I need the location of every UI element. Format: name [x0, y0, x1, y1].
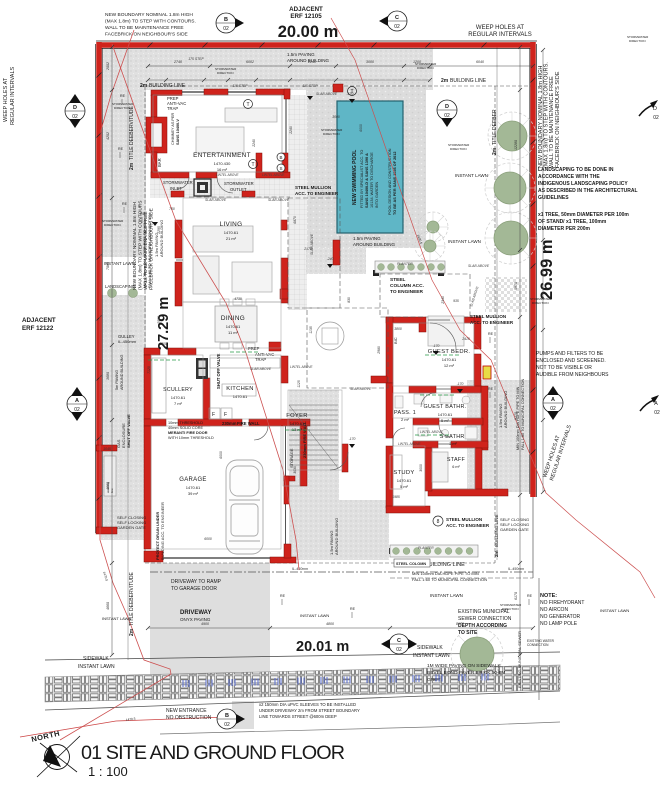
svg-text:-170: -170: [349, 437, 356, 441]
svg-text:NEW ENTRANCE: NEW ENTRANCE: [166, 708, 207, 714]
svg-text:MERANTI FIRE DOOR: MERANTI FIRE DOOR: [168, 431, 208, 435]
svg-text:4800: 4800: [326, 622, 334, 626]
svg-text:ACC. TO ENGINEER: ACC. TO ENGINEER: [295, 191, 339, 196]
svg-text:FITTED BY SPECIALIST ACC. TO: FITTED BY SPECIALIST ACC. TO: [360, 150, 364, 208]
svg-text:3000: 3000: [419, 464, 423, 472]
svg-text:AS DESCRIBED IN THE ARCHITECTU: AS DESCRIBED IN THE ARCHITECTURAL: [538, 188, 638, 194]
svg-text:LINTEL ABOVE: LINTEL ABOVE: [398, 442, 421, 446]
svg-text:CONNECTION: CONNECTION: [527, 643, 549, 647]
svg-text:3800: 3800: [394, 327, 402, 331]
svg-text:SANS 10400-V: SANS 10400-V: [176, 119, 180, 145]
svg-text:LINE TOWARDS STREET @600m DEEP: LINE TOWARDS STREET @600m DEEP: [259, 714, 337, 719]
svg-text:UNDER DRIVEWAY 2m FROM STREET: UNDER DRIVEWAY 2m FROM STREET BOUNDARY: [259, 708, 360, 713]
svg-text:POOL DESIGN AND CONSTRUCTION: POOL DESIGN AND CONSTRUCTION: [388, 148, 392, 215]
svg-text:LINTEL ABOVE: LINTEL ABOVE: [290, 365, 313, 369]
svg-text:FACEBRICK ON NEIGHBOUR'S SIDE: FACEBRICK ON NEIGHBOUR'S SIDE: [105, 32, 188, 38]
svg-text:NO AIRCON: NO AIRCON: [540, 607, 568, 613]
svg-text:BUILDING LINE: BUILDING LINE: [425, 562, 465, 568]
svg-text:x2 150mm DIA uPVC SLEEVES TO B: x2 150mm DIA uPVC SLEEVES TO BE INSTALLE…: [259, 702, 356, 707]
svg-text:C: C: [397, 638, 401, 644]
svg-text:SIDEWALK: SIDEWALK: [417, 645, 443, 651]
svg-text:8170: 8170: [514, 412, 518, 420]
svg-text:4202: 4202: [106, 132, 110, 140]
svg-text:C: C: [395, 15, 399, 21]
svg-text:2740: 2740: [173, 60, 182, 64]
svg-text:NO FIREHYDRANT: NO FIREHYDRANT: [540, 600, 584, 606]
svg-text:DIRECTION: DIRECTION: [104, 223, 121, 227]
svg-text:BIC: BIC: [393, 337, 398, 344]
svg-text:LIVING: LIVING: [220, 221, 243, 228]
svg-text:5970: 5970: [514, 282, 518, 290]
svg-text:ADJACENT: ADJACENT: [22, 317, 56, 324]
svg-text:4660: 4660: [106, 482, 110, 490]
svg-text:SCULLERY: SCULLERY: [163, 387, 193, 393]
svg-text:STEEL MULLION: STEEL MULLION: [470, 314, 506, 319]
svg-text:T: T: [350, 89, 353, 95]
svg-text:A: A: [75, 398, 79, 404]
svg-text:S: S: [279, 166, 282, 171]
svg-text:RE: RE: [488, 387, 494, 391]
svg-text:SLAB ABOVE: SLAB ABOVE: [250, 367, 272, 371]
svg-text:115 STEP: 115 STEP: [232, 84, 248, 88]
svg-text:ACC. TO ENGINEER: ACC. TO ENGINEER: [446, 523, 490, 528]
svg-text:FALL 1:60 TO MUNICIPAL CONNECT: FALL 1:60 TO MUNICIPAL CONNECTION: [412, 577, 487, 582]
svg-text:1470.430: 1470.430: [214, 161, 231, 166]
svg-text:DIRECTION: DIRECTION: [114, 106, 131, 110]
svg-text:STEEL MULLION: STEEL MULLION: [446, 517, 482, 522]
svg-text:INSTANT LAWN: INSTANT LAWN: [455, 173, 488, 178]
svg-text:3680: 3680: [106, 372, 110, 380]
svg-text:INSTANT LAWN: INSTANT LAWN: [102, 616, 131, 621]
svg-text:STORMWATER: STORMWATER: [224, 181, 254, 186]
svg-text:INSTANT LAWN: INSTANT LAWN: [413, 653, 450, 659]
svg-text:02: 02: [223, 26, 229, 32]
svg-text:NEW BOUNDARY NOMINAL 1.8m HIGH: NEW BOUNDARY NOMINAL 1.8m HIGH: [132, 202, 138, 290]
svg-text:1.5m PAVING: 1.5m PAVING: [353, 236, 381, 241]
svg-text:2m: 2m: [494, 550, 499, 557]
svg-text:39 m²: 39 m²: [188, 491, 199, 496]
svg-text:6870: 6870: [293, 216, 297, 224]
svg-text:RE: RE: [527, 594, 533, 598]
svg-text:NO GENERATOR: NO GENERATOR: [540, 614, 580, 620]
svg-text:6000: 6000: [219, 451, 223, 459]
svg-text:5 m²: 5 m²: [400, 484, 409, 489]
svg-text:AROUND BUILDING: AROUND BUILDING: [353, 242, 396, 247]
svg-text:1470.61: 1470.61: [224, 230, 239, 235]
svg-text:6000: 6000: [359, 124, 363, 132]
svg-text:TRAP: TRAP: [255, 357, 266, 362]
svg-text:KITCHEN: KITCHEN: [226, 386, 254, 392]
svg-text:1470.61: 1470.61: [442, 357, 457, 362]
svg-text:7060: 7060: [106, 262, 110, 270]
svg-text:2m: 2m: [492, 147, 498, 155]
svg-text:BUILDING LINE: BUILDING LINE: [494, 514, 499, 547]
svg-text:11 m²: 11 m²: [228, 330, 239, 335]
svg-text:02: 02: [72, 114, 78, 120]
svg-text:1470.61: 1470.61: [397, 478, 412, 483]
svg-text:02: 02: [74, 407, 80, 413]
svg-text:1470.61: 1470.61: [438, 412, 453, 417]
svg-text:FACEBRICK ON NEIGHBOUR'S SIDE: FACEBRICK ON NEIGHBOUR'S SIDE: [555, 71, 561, 168]
svg-text:10mm THRESHOLD: 10mm THRESHOLD: [168, 421, 203, 425]
svg-text:12280: 12280: [514, 140, 518, 150]
svg-text:TO GARAGE DOOR: TO GARAGE DOOR: [171, 586, 217, 592]
svg-text:T: T: [246, 102, 249, 108]
svg-text:GARAGE: GARAGE: [179, 477, 206, 483]
svg-text:A: A: [551, 397, 555, 403]
svg-text:T: T: [251, 162, 254, 168]
svg-text:ENTERTAINMENT: ENTERTAINMENT: [193, 152, 251, 159]
svg-text:DIRECTION: DIRECTION: [417, 66, 434, 70]
svg-text:2m: 2m: [140, 83, 148, 89]
svg-text:INDIGENOUS LANDSCAPING POLICY: INDIGENOUS LANDSCAPING POLICY: [538, 181, 628, 187]
svg-text:2340: 2340: [441, 296, 445, 305]
svg-text:B: B: [225, 713, 229, 719]
svg-text:TITLE DEEBERVITUDE: TITLE DEEBERVITUDE: [129, 106, 135, 160]
svg-text:D: D: [653, 106, 657, 112]
svg-text:6170: 6170: [514, 592, 518, 600]
svg-text:2240: 2240: [252, 139, 256, 148]
svg-text:INSTANT LAWN: INSTANT LAWN: [300, 613, 329, 618]
svg-text:AROUND BUILDING: AROUND BUILDING: [159, 220, 164, 257]
svg-text:RE: RE: [488, 332, 494, 336]
svg-text:TO BE AS PER SANS 1536 OF 2012: TO BE AS PER SANS 1536 OF 2012: [393, 151, 397, 215]
svg-text:RE: RE: [350, 607, 356, 611]
svg-text:SLAB ABOVE: SLAB ABOVE: [310, 233, 314, 255]
svg-text:6040: 6040: [476, 60, 484, 64]
svg-text:175 STEP: 175 STEP: [188, 57, 204, 61]
svg-text:ACC. TO ENGINEER: ACC. TO ENGINEER: [470, 320, 514, 325]
svg-text:NO LAMP POLE: NO LAMP POLE: [540, 621, 578, 627]
svg-text:SIDEWALK: SIDEWALK: [83, 656, 109, 662]
svg-text:D: D: [445, 104, 449, 110]
svg-text:FOYER: FOYER: [286, 413, 307, 419]
svg-text:REGULAR INTERVALS: REGULAR INTERVALS: [10, 66, 16, 125]
svg-text:2m: 2m: [129, 162, 135, 170]
svg-text:3000: 3000: [332, 115, 340, 119]
svg-text:STEEL MULLION: STEEL MULLION: [295, 185, 331, 190]
svg-text:2410: 2410: [461, 337, 470, 341]
svg-text:PASS. 1: PASS. 1: [394, 410, 416, 416]
svg-text:RE: RE: [140, 212, 146, 216]
svg-text:B: B: [224, 17, 228, 23]
svg-text:8: 8: [437, 519, 440, 525]
svg-text:BAR: BAR: [157, 158, 162, 167]
svg-text:AROUND BUILDING: AROUND BUILDING: [334, 518, 339, 555]
svg-text:NO OBSTRUCTION: NO OBSTRUCTION: [166, 715, 212, 721]
svg-text:ADJACENT: ADJACENT: [289, 6, 323, 13]
svg-text:DINING: DINING: [221, 315, 245, 322]
svg-text:PUMPS AND FILTERS TO BE: PUMPS AND FILTERS TO BE: [536, 351, 604, 357]
svg-text:02: 02: [394, 24, 400, 30]
svg-text:2295: 2295: [157, 226, 161, 235]
svg-text:1.5m PAVING: 1.5m PAVING: [287, 52, 315, 57]
svg-text:INSTANT LAWN: INSTANT LAWN: [430, 593, 463, 598]
svg-text:BUILDING ACC. TO ENGINEER: BUILDING ACC. TO ENGINEER: [160, 502, 165, 560]
svg-text:STEEL COLOMN: STEEL COLOMN: [396, 562, 426, 566]
svg-text:INSTANT LAWN: INSTANT LAWN: [448, 239, 481, 244]
svg-text:750: 750: [169, 207, 175, 211]
svg-text:(MAX 1.8m) TO STEP WITH CONTOU: (MAX 1.8m) TO STEP WITH CONTOURS.: [105, 19, 196, 25]
svg-text:WITH 10mm THRESHOLD: WITH 10mm THRESHOLD: [168, 436, 214, 440]
svg-text:40mm SOLID CORE: 40mm SOLID CORE: [168, 426, 203, 430]
svg-text:6002: 6002: [246, 60, 254, 64]
svg-text:DIRECTION: DIRECTION: [323, 132, 340, 136]
svg-text:SLAB ABOVE: SLAB ABOVE: [268, 198, 290, 202]
svg-text:01 SITE AND GROUND FLOOR: 01 SITE AND GROUND FLOOR: [81, 742, 345, 764]
svg-text:DIRECTION: DIRECTION: [629, 39, 646, 43]
svg-text:LINTEL ABOVE: LINTEL ABOVE: [216, 173, 239, 177]
svg-text:1045: 1045: [103, 447, 111, 451]
svg-text:2525: 2525: [157, 316, 161, 325]
svg-text:RE: RE: [122, 202, 128, 206]
svg-text:16 m²: 16 m²: [217, 167, 228, 172]
svg-text:A: A: [654, 401, 658, 407]
svg-text:LANDSCAPING: LANDSCAPING: [105, 284, 135, 289]
svg-text:SLAB ABOVE: SLAB ABOVE: [205, 198, 227, 202]
svg-text:GARDEN GATE: GARDEN GATE: [500, 527, 529, 532]
svg-text:SHUT OFF VALVE: SHUT OFF VALVE: [216, 353, 221, 389]
svg-text:MIN 100mm DIA HDPE PIPE TO MIN: MIN 100mm DIA HDPE PIPE TO MIN: [412, 571, 479, 576]
svg-text:NOTE:: NOTE:: [540, 593, 557, 599]
svg-text:1470.61: 1470.61: [171, 395, 186, 400]
svg-text:935: 935: [453, 299, 459, 303]
svg-text:2980: 2980: [377, 346, 381, 355]
svg-text:TO ENGINEER: TO ENGINEER: [390, 289, 423, 295]
svg-text:AROUND BUILDING: AROUND BUILDING: [503, 391, 508, 428]
svg-text:TO SITE: TO SITE: [458, 630, 478, 636]
svg-text:AUDIBLE FROM NEIGHBOURS: AUDIBLE FROM NEIGHBOURS: [536, 372, 609, 378]
svg-text:GUEST BATHR.: GUEST BATHR.: [424, 404, 467, 410]
svg-text:WALL TO BE MAINTENANCE FREE: WALL TO BE MAINTENANCE FREE: [105, 25, 184, 31]
svg-text:ERF 12105: ERF 12105: [290, 13, 322, 20]
svg-text:LINTEL ABOVE: LINTEL ABOVE: [420, 430, 443, 434]
svg-text:10134. WATER TO DISCHARGE: 10134. WATER TO DISCHARGE: [370, 152, 374, 208]
svg-text:1125: 1125: [297, 380, 301, 387]
svg-text:-240: -240: [327, 257, 334, 261]
svg-text:GARDEN GATE: GARDEN GATE: [117, 525, 146, 530]
svg-text:TRAP: TRAP: [167, 106, 178, 111]
svg-text:12 m²: 12 m²: [444, 363, 455, 368]
svg-text:4730: 4730: [234, 297, 242, 301]
svg-text:OUTLET: OUTLET: [230, 187, 247, 192]
svg-text:SLAB ABOVE: SLAB ABOVE: [316, 92, 338, 96]
svg-text:REGULAR INTERVALS: REGULAR INTERVALS: [468, 32, 531, 38]
svg-text:-170: -170: [457, 382, 464, 386]
svg-text:PLANTER: PLANTER: [418, 546, 434, 550]
svg-text:02: 02: [396, 647, 402, 653]
svg-text:RE: RE: [120, 94, 126, 98]
svg-text:D: D: [73, 105, 77, 111]
svg-text:4660: 4660: [106, 602, 110, 610]
svg-text:DRIVEWAY: DRIVEWAY: [180, 610, 211, 616]
svg-text:6 m²: 6 m²: [452, 465, 460, 469]
svg-text:AROUND BUILDING: AROUND BUILDING: [120, 355, 124, 390]
svg-text:NOT TO BE VISIBLE OR: NOT TO BE VISIBLE OR: [536, 365, 592, 371]
svg-text:STORAGE: STORAGE: [289, 448, 294, 468]
svg-text:PREP: PREP: [248, 346, 260, 351]
svg-text:NEW SWIMMING POOL: NEW SWIMMING POOL: [352, 150, 358, 205]
svg-text:INSTANT LAWN: INSTANT LAWN: [600, 608, 629, 613]
svg-text:BUILDING LINE: BUILDING LINE: [149, 83, 186, 89]
svg-text:26.99 m: 26.99 m: [538, 239, 556, 300]
svg-text:ENCLOSED AND SCREENED.: ENCLOSED AND SCREENED.: [536, 358, 606, 364]
svg-text:LANDSCAPING TO BE DONE IN: LANDSCAPING TO BE DONE IN: [538, 167, 614, 173]
svg-text:EXISTING MUNICIPAL SEWER: EXISTING MUNICIPAL SEWER: [517, 631, 522, 688]
svg-text:FIRE WALL: FIRE WALL: [237, 421, 260, 426]
svg-text:4900: 4900: [201, 622, 209, 626]
svg-text:8170: 8170: [456, 622, 464, 626]
svg-text:DRIVEWAY TO RAMP: DRIVEWAY TO RAMP: [171, 579, 222, 585]
svg-text:CHIMNEY AS PER: CHIMNEY AS PER: [171, 113, 175, 145]
svg-text:115 STEP: 115 STEP: [302, 84, 318, 88]
svg-text:1135: 1135: [309, 326, 313, 333]
svg-text:SANS 10400-D & SANS 1390 &: SANS 10400-D & SANS 1390 &: [365, 153, 369, 208]
svg-text:PLANTER: PLANTER: [397, 262, 413, 266]
svg-text:21 m²: 21 m²: [226, 236, 237, 241]
svg-text:02: 02: [653, 115, 659, 121]
svg-text:830: 830: [347, 297, 351, 303]
svg-text:1985: 1985: [392, 495, 400, 499]
svg-text:STAFF: STAFF: [447, 457, 466, 463]
svg-text:6000: 6000: [204, 537, 212, 541]
svg-text:ACCORDANCE WITH THE: ACCORDANCE WITH THE: [538, 174, 600, 180]
svg-text:F: F: [212, 412, 215, 418]
svg-text:3030: 3030: [293, 466, 297, 474]
svg-text:2m: 2m: [129, 628, 135, 636]
svg-text:NEW BOUNDARY NOMINAL 1.8m HIGH: NEW BOUNDARY NOMINAL 1.8m HIGH: [105, 12, 193, 18]
svg-text:DIRECTION: DIRECTION: [450, 147, 467, 151]
svg-text:WEEP HOLES AT: WEEP HOLES AT: [476, 25, 524, 31]
svg-text:WEEP HOLES AT: WEEP HOLES AT: [3, 77, 9, 122]
svg-text:DIAMETER PER 200m: DIAMETER PER 200m: [538, 226, 591, 232]
svg-text:3000: 3000: [366, 60, 374, 64]
svg-text:STEEL: STEEL: [390, 277, 406, 283]
svg-text:RE: RE: [280, 594, 286, 598]
svg-text:IL-450mm: IL-450mm: [292, 567, 308, 571]
svg-text:2m: 2m: [441, 78, 449, 84]
svg-text:B: B: [279, 155, 282, 160]
svg-text:2002: 2002: [106, 62, 110, 71]
svg-text:x1 TREE, 50mm DIAMETER PER 100: x1 TREE, 50mm DIAMETER PER 100m: [538, 212, 629, 218]
svg-text:DIRECTION: DIRECTION: [502, 607, 519, 611]
svg-text:1470.61: 1470.61: [233, 394, 248, 399]
svg-text:ERF 12122: ERF 12122: [22, 325, 54, 332]
svg-text:1300: 1300: [159, 342, 167, 346]
svg-text:OF STAND/ x1 TREE, 100mm: OF STAND/ x1 TREE, 100mm: [538, 219, 607, 225]
svg-text:LINTEL ABOVE: LINTEL ABOVE: [262, 173, 285, 177]
svg-text:IL-450mm: IL-450mm: [508, 567, 524, 571]
svg-text:02: 02: [444, 113, 450, 119]
svg-text:STUDY: STUDY: [393, 470, 414, 476]
svg-text:1470.61: 1470.61: [186, 485, 201, 490]
svg-text:7120: 7120: [147, 366, 151, 374]
svg-text:20.01 m: 20.01 m: [296, 639, 349, 655]
svg-text:02: 02: [654, 410, 660, 416]
svg-text:SLAB ABOVE: SLAB ABOVE: [468, 264, 490, 268]
svg-text:5 m²: 5 m²: [441, 418, 450, 423]
svg-text:DIRECTION: DIRECTION: [532, 301, 549, 305]
svg-text:DIRECTION: DIRECTION: [217, 71, 234, 75]
svg-text:1M WIDE PAVING ON SIDEWALK: 1M WIDE PAVING ON SIDEWALK: [427, 663, 502, 669]
svg-text:GUIDELINES: GUIDELINES: [538, 195, 569, 201]
svg-text:TITLE DEEBERVITUDE: TITLE DEEBERVITUDE: [129, 572, 135, 626]
svg-text:SEWER CONNECTION: SEWER CONNECTION: [458, 616, 512, 622]
svg-text:1 : 100: 1 : 100: [88, 764, 128, 779]
svg-text:COLUMN ACC.: COLUMN ACC.: [390, 283, 424, 289]
svg-text:RE: RE: [118, 147, 124, 151]
svg-text:F: F: [224, 412, 227, 418]
svg-text:-170: -170: [433, 344, 440, 348]
svg-text:FALL 1:60 TO MUNICIPAL CONNECT: FALL 1:60 TO MUNICIPAL CONNECTION: [147, 213, 152, 288]
svg-text:2240: 2240: [289, 126, 293, 135]
svg-text:2240: 2240: [307, 60, 316, 64]
svg-text:1470.61: 1470.61: [226, 324, 241, 329]
svg-text:BUILDING LINE: BUILDING LINE: [450, 78, 487, 84]
svg-text:5m PAVING: 5m PAVING: [115, 370, 119, 390]
svg-text:20.00 m: 20.00 m: [278, 23, 339, 41]
svg-text:INTO GARDEN: INTO GARDEN: [375, 181, 379, 208]
svg-text:7 m²: 7 m²: [174, 401, 183, 406]
svg-text:02: 02: [550, 406, 556, 412]
svg-text:230mm FIRE WALL: 230mm FIRE WALL: [302, 421, 307, 458]
svg-text:02: 02: [224, 722, 230, 728]
svg-text:FALL 1:60 TO MUNICIPAL CONNECT: FALL 1:60 TO MUNICIPAL CONNECTION: [521, 378, 525, 450]
svg-text:SLAB ABOVE: SLAB ABOVE: [350, 387, 372, 391]
svg-text:IL-450mm: IL-450mm: [118, 339, 137, 344]
svg-text:230mm: 230mm: [222, 421, 237, 426]
svg-text:INSTANT LAWN: INSTANT LAWN: [78, 664, 115, 670]
svg-text:TITLE DEEBER: TITLE DEEBER: [492, 109, 498, 145]
svg-text:SHUT OFF VALVE: SHUT OFF VALVE: [126, 414, 131, 448]
